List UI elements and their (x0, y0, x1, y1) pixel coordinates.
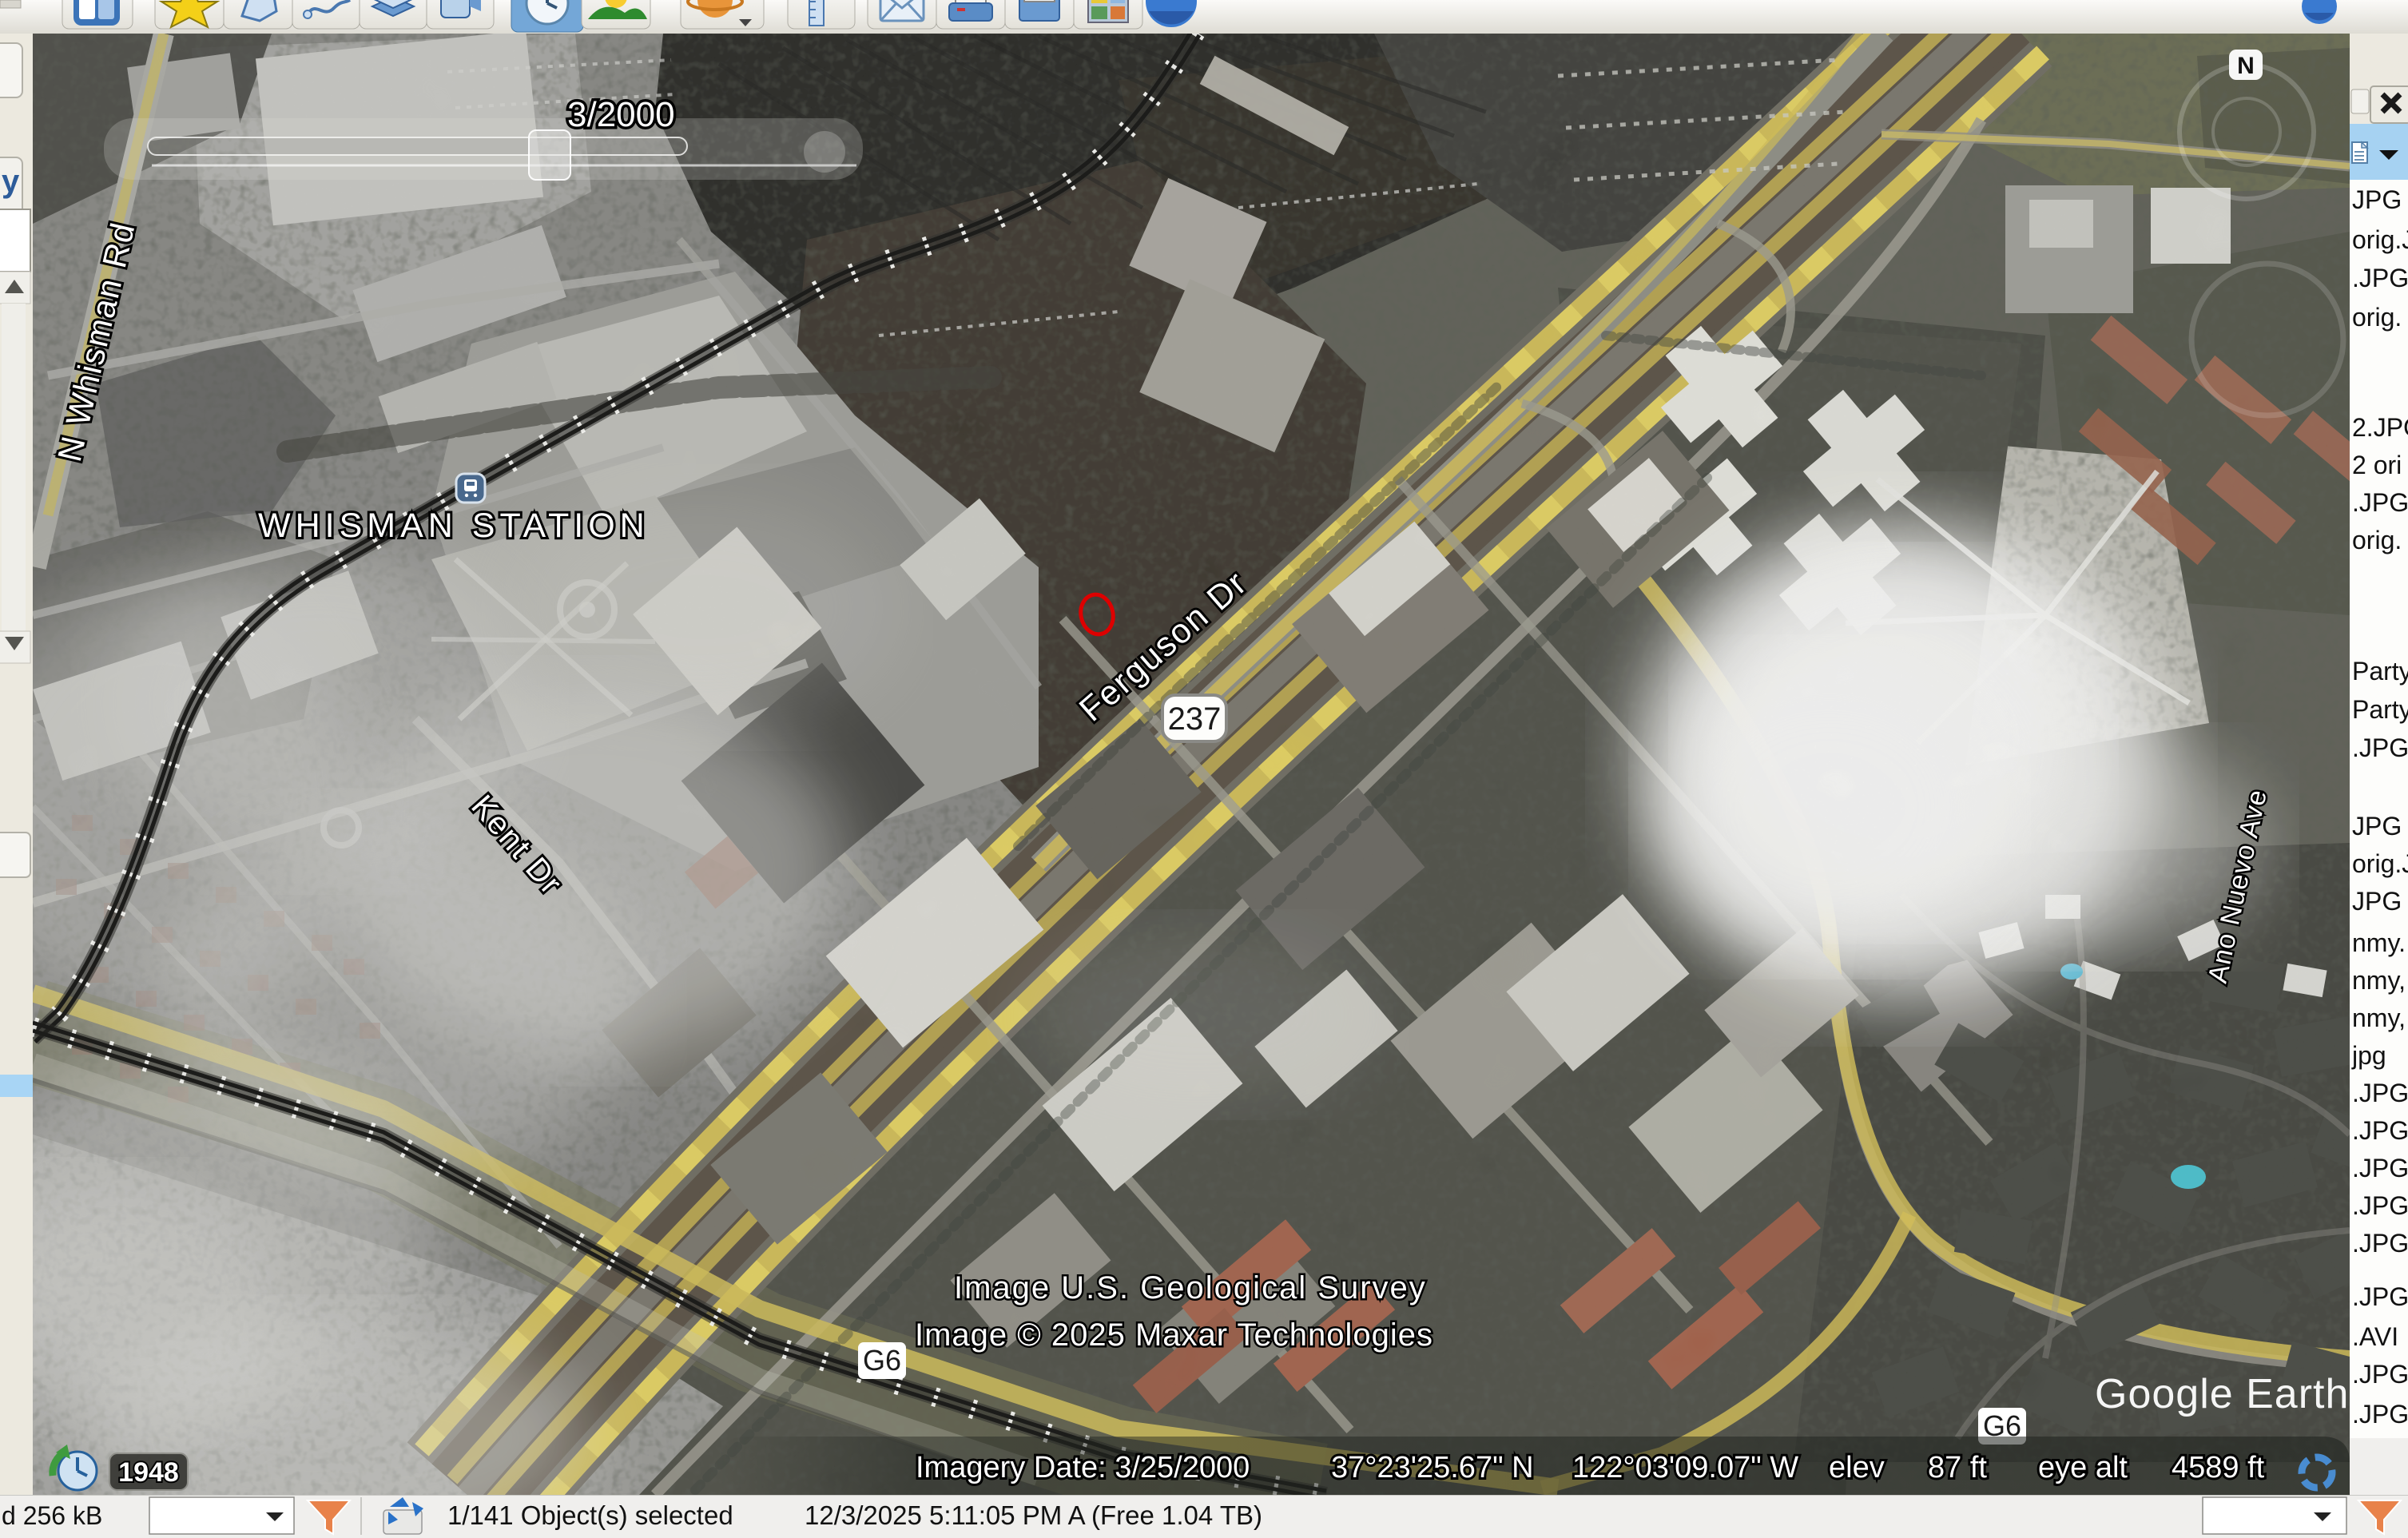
svg-text:4589 ft: 4589 ft (2172, 1451, 2265, 1484)
svg-text:.JPG: .JPG (2352, 1116, 2408, 1145)
svg-text:37°23'25.67" N: 37°23'25.67" N (1331, 1451, 1534, 1484)
svg-text:orig.J: orig.J (2352, 849, 2408, 878)
svg-text:Image U.S. Geological Survey: Image U.S. Geological Survey (954, 1270, 1427, 1306)
svg-text:Image © 2025 Maxar Technologie: Image © 2025 Maxar Technologies (915, 1317, 1433, 1353)
svg-text:12/3/2025 5:11:05 PM A (Free 1: 12/3/2025 5:11:05 PM A (Free 1.04 TB) (805, 1500, 1262, 1530)
svg-text:87 ft: 87 ft (1928, 1451, 1987, 1484)
svg-text:1948: 1948 (118, 1457, 179, 1488)
svg-text:nmy,: nmy, (2352, 966, 2406, 995)
svg-text:elev: elev (1829, 1451, 1885, 1484)
svg-text:.JPG: .JPG (2352, 1400, 2408, 1429)
svg-text:.JPG: .JPG (2352, 1154, 2408, 1182)
svg-text:WHISMAN STATION: WHISMAN STATION (258, 507, 650, 545)
svg-text:JPG: JPG (2352, 185, 2402, 214)
svg-text:nmy.: nmy. (2352, 928, 2406, 957)
svg-text:G6: G6 (863, 1344, 901, 1377)
svg-text:Imagery Date: 3/25/2000: Imagery Date: 3/25/2000 (916, 1451, 1250, 1484)
svg-text:.JPG: .JPG (2352, 264, 2408, 292)
svg-text:.AVI: .AVI (2352, 1322, 2398, 1351)
svg-text:.JPG: .JPG (2352, 1191, 2408, 1220)
svg-text:eye alt: eye alt (2038, 1451, 2128, 1484)
svg-text:JPG: JPG (2352, 812, 2402, 841)
svg-text:N: N (2237, 53, 2255, 79)
svg-text:jpg: jpg (2351, 1041, 2386, 1070)
svg-text:.JPG: .JPG (2352, 1229, 2408, 1258)
svg-text:nmy,: nmy, (2352, 1003, 2406, 1032)
svg-text:orig.J: orig.J (2352, 225, 2408, 254)
svg-text:.JPG: .JPG (2352, 1360, 2408, 1389)
svg-text:3/2000: 3/2000 (567, 95, 675, 134)
svg-text:2 ori: 2 ori (2352, 451, 2402, 479)
svg-text:Party: Party (2352, 657, 2408, 686)
svg-text:Google Earth: Google Earth (2095, 1371, 2349, 1417)
svg-text:237: 237 (1168, 701, 1222, 737)
svg-text:y: y (2, 164, 20, 199)
svg-text:Party: Party (2352, 695, 2408, 724)
svg-text:orig.: orig. (2352, 526, 2402, 554)
svg-text:.JPG: .JPG (2352, 488, 2408, 517)
svg-text:JPG: JPG (2352, 887, 2402, 916)
svg-text:d 256 kB: d 256 kB (2, 1501, 102, 1530)
svg-text:1/141 Object(s) selected: 1/141 Object(s) selected (447, 1500, 733, 1530)
svg-text:122°03'09.07" W: 122°03'09.07" W (1572, 1451, 1798, 1484)
svg-text:.JPG: .JPG (2352, 733, 2408, 762)
svg-text:.JPG: .JPG (2352, 1282, 2408, 1311)
svg-text:.JPG: .JPG (2352, 1079, 2408, 1107)
svg-text:2.JPG: 2.JPG (2352, 413, 2408, 442)
svg-text:orig.: orig. (2352, 303, 2402, 332)
